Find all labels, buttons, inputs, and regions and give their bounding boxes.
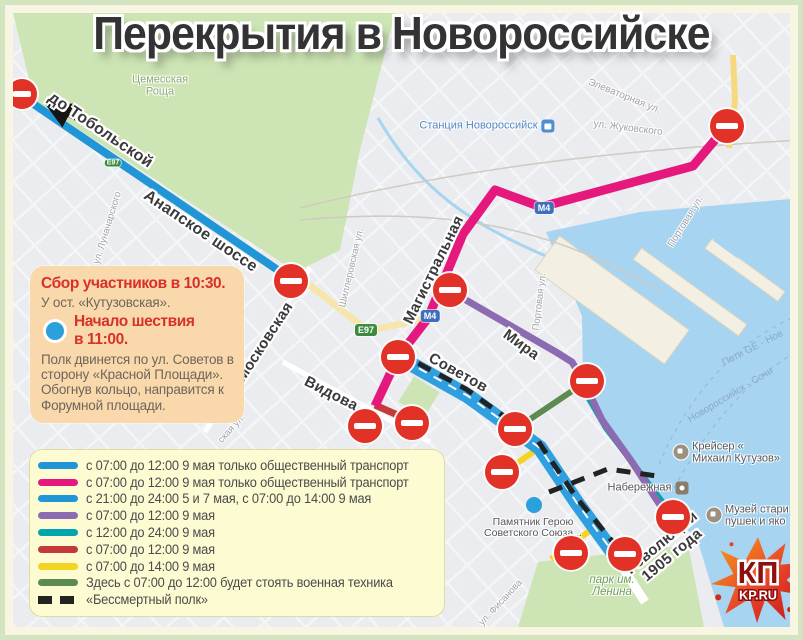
road-badge-m4-b: М4	[535, 202, 554, 214]
railway-line	[300, 140, 790, 208]
legend-label: с 07:00 до 12:00 9 мая только общественн…	[86, 475, 409, 490]
no-entry-sign	[554, 536, 588, 570]
legend-swatch-green	[38, 579, 78, 586]
legend-row: с 21:00 до 24:00 5 и 7 мая, с 07:00 до 1…	[38, 491, 436, 508]
poi-label-lenin-park-line2: Ленина	[589, 586, 634, 598]
legend-swatch-blue2	[38, 495, 78, 502]
no-entry-sign	[570, 364, 604, 398]
legend-row: Здесь с 07:00 до 12:00 будет стоять воен…	[38, 575, 436, 592]
legend-label: с 21:00 до 24:00 5 и 7 мая, с 07:00 до 1…	[86, 491, 371, 506]
legend-swatch-red	[38, 546, 78, 553]
poi-label-forest: Цемесская Роща	[132, 74, 188, 97]
poi-label-forest-line2: Роща	[132, 86, 188, 98]
train-station-icon	[542, 120, 555, 133]
legend-label: с 07:00 до 14:00 9 мая	[86, 559, 215, 574]
poi-label-museum-line1: Музей стари	[725, 504, 789, 516]
kp-logo-kpru: KP.RU	[739, 587, 777, 602]
legend-label: «Бессмертный полк»	[86, 592, 208, 607]
legend-label: Здесь с 07:00 до 12:00 будет стоять воен…	[86, 575, 393, 590]
page-title-text: Перекрытия в Новороссийске	[93, 6, 709, 60]
legend-row: с 12:00 до 24:00 9 мая	[38, 524, 436, 541]
no-entry-sign	[710, 109, 744, 143]
no-entry-sign	[381, 340, 415, 374]
info-start-text: Начало шествия в 11:00.	[74, 313, 195, 349]
kp-logo-splat	[715, 594, 721, 600]
camera-icon	[675, 482, 688, 495]
kp-logo-kp: КП	[738, 556, 779, 590]
legend-row: с 07:00 до 12:00 9 мая	[38, 507, 436, 524]
legend-row: с 07:00 до 12:00 9 мая только общественн…	[38, 474, 436, 491]
info-body: Полк двинется по ул. Советов в сторону «…	[41, 352, 234, 414]
poi-label-embankment-text: Набережная	[608, 482, 672, 494]
no-entry-sign	[348, 409, 382, 443]
no-entry-sign	[433, 273, 467, 307]
legend-label: с 07:00 до 12:00 9 мая	[86, 508, 215, 523]
legend-swatch-teal	[38, 529, 78, 536]
poi-label-station: Станция Новороссийск	[419, 120, 554, 133]
legend-swatch-purple	[38, 512, 78, 519]
road-badge-m4: М4	[421, 310, 440, 322]
legend-label: с 07:00 до 12:00 9 мая	[86, 542, 215, 557]
legend-swatch-blue	[38, 462, 78, 469]
start-dot-icon	[43, 319, 67, 343]
poi-label-museum: Музей стари пушек и яко	[725, 504, 789, 527]
no-entry-sign	[656, 500, 690, 534]
road-badge-e97: E97	[355, 324, 377, 336]
no-entry-sign	[395, 406, 429, 440]
museum-poi-icon	[706, 507, 723, 524]
legend-row: с 07:00 до 12:00 9 мая только общественн…	[38, 457, 436, 474]
no-entry-sign	[608, 537, 642, 571]
legend-swatch-pink	[38, 479, 78, 486]
poi-label-forest-line1: Цемесская	[132, 74, 188, 86]
info-stop: У ост. «Кутузовская».	[41, 295, 234, 310]
road-badge-e97-mini: E97	[105, 160, 121, 167]
kp-logo-splat	[729, 542, 733, 546]
kp-logo-splat	[787, 607, 790, 612]
legend-label: с 12:00 до 24:00 9 мая	[86, 525, 215, 540]
no-entry-sign	[274, 264, 308, 298]
info-heading: Сбор участников в 10:30.	[41, 275, 234, 293]
legend-swatch-yellow	[38, 563, 78, 570]
poi-label-cruiser-line2: Михаил Кутузов»	[692, 453, 780, 465]
poi-label-cruiser: Крейсер « Михаил Кутузов»	[692, 441, 780, 464]
info-start-row: Начало шествия в 11:00.	[43, 313, 234, 349]
poi-label-lenin-park: парк им. Ленина	[589, 574, 634, 598]
legend-box: с 07:00 до 12:00 9 мая только общественн…	[30, 450, 444, 616]
cruiser-poi-icon	[673, 444, 690, 461]
poi-label-cruiser-line1: Крейсер «	[692, 441, 780, 453]
march-start-marker	[526, 497, 542, 513]
no-entry-sign	[485, 455, 519, 489]
info-start-line2: в 11:00.	[74, 331, 128, 348]
legend-row: «Бессмертный полк»	[38, 591, 436, 608]
legend-label: с 07:00 до 12:00 9 мая только общественн…	[86, 458, 409, 473]
legend-row: с 07:00 до 14:00 9 мая	[38, 558, 436, 575]
poi-label-embankment: Набережная	[608, 482, 689, 495]
page-title: Перекрытия в Новороссийске	[0, 6, 803, 60]
info-box: Сбор участников в 10:30. У ост. «Кутузов…	[30, 266, 244, 423]
map-canvas: до Тобольской Анапское шоссе Московская …	[13, 13, 790, 627]
kp-logo: КП KP.RU	[708, 534, 790, 624]
legend-swatch-dashed	[38, 596, 78, 604]
poi-label-station-text: Станция Новороссийск	[419, 120, 537, 132]
poi-label-lenin-park-line1: парк им.	[589, 574, 634, 586]
no-entry-sign	[498, 412, 532, 446]
info-start-line1: Начало шествия	[74, 313, 195, 330]
poi-label-museum-line2: пушек и яко	[725, 516, 789, 528]
legend-row: с 07:00 до 12:00 9 мая	[38, 541, 436, 558]
